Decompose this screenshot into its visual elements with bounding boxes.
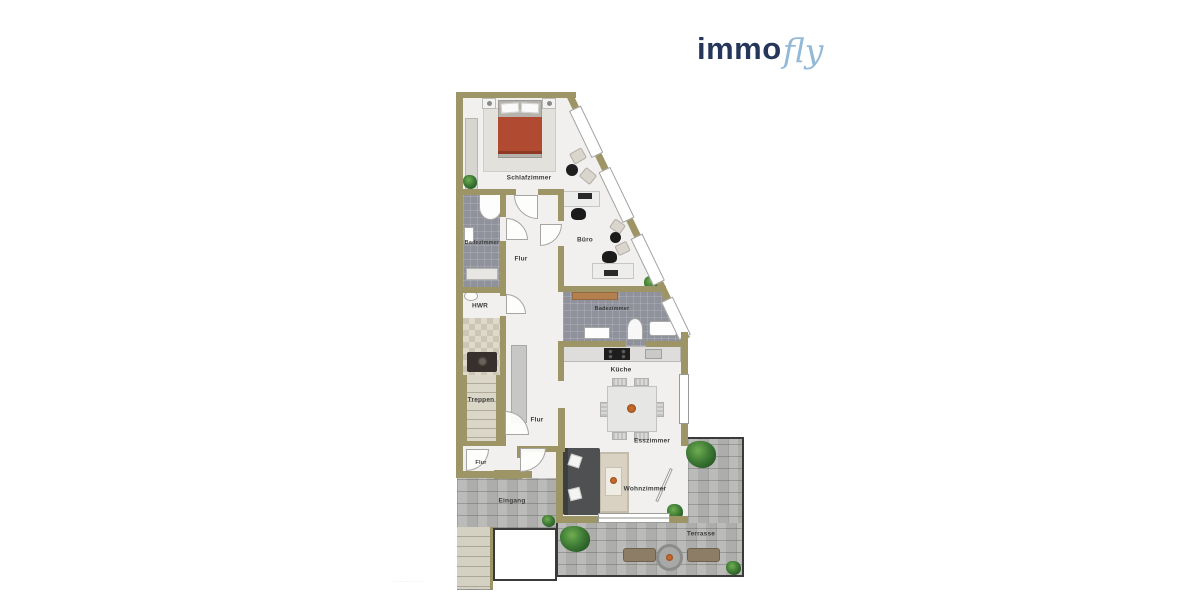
room-label-flur-1: Flur [514, 256, 527, 263]
wall-bedroom-bottom-a [456, 189, 516, 195]
dining-chair [612, 378, 627, 386]
office-monitor-2 [604, 270, 618, 276]
wall-bath2-top [558, 286, 666, 292]
cooktop [604, 348, 630, 360]
wall-outer-top [456, 92, 576, 98]
room-label-badezimmer-1: Badezimmer [465, 240, 500, 246]
wall-livingroom-left [556, 446, 563, 523]
room-label-buero: Büro [577, 237, 593, 244]
terrace-bench-right [687, 548, 720, 562]
room-label-esszimmer: Esszimmer [634, 438, 670, 445]
room-label-kueche: Küche [611, 367, 632, 374]
plant-icon [560, 526, 590, 552]
outdoor-steps [457, 527, 493, 589]
office-chair-1 [571, 208, 586, 220]
lamp-right [547, 101, 552, 106]
dining-chair [634, 378, 649, 386]
room-label-flur-3: Flur [475, 460, 486, 466]
dining-chair [656, 402, 664, 417]
candle-decor [610, 477, 617, 484]
entrance-step [494, 470, 522, 479]
wall-bath2-bottom-b [646, 341, 686, 347]
wall-bath2-bottom-a [558, 341, 626, 347]
dining-chair [612, 432, 627, 440]
office-chair-2 [602, 251, 617, 263]
fine-print: ············· [393, 579, 423, 584]
lamp-left [487, 101, 492, 106]
wall-outer-left [456, 92, 463, 478]
wall-bath1-right-b [500, 241, 506, 288]
washing-machine [467, 352, 497, 372]
room-label-wohnzimmer: Wohnzimmer [624, 486, 667, 493]
office-side-table [610, 232, 621, 243]
wall-office-left-a [558, 189, 564, 221]
window-dining-right [679, 374, 689, 424]
bath2-vanity [584, 327, 610, 339]
shower-tub [479, 194, 502, 220]
wall-hall-stub [558, 408, 565, 452]
bedroom-side-table [566, 164, 578, 176]
bed-duvet [498, 117, 542, 154]
floor-plan: Schlafzimmer Badezimmer Flur Büro HWR Ba… [0, 0, 1200, 600]
room-label-treppen: Treppen [468, 397, 495, 404]
wall-kitchen-left [558, 347, 564, 381]
plant-icon [463, 175, 477, 189]
bed-pillow-right [521, 103, 539, 114]
hall-sideboard [511, 345, 527, 423]
terrace-border-top [688, 437, 744, 439]
room-label-eingang: Eingang [498, 498, 525, 505]
sliding-door-livingroom [598, 513, 670, 523]
room-label-flur-2: Flur [530, 417, 543, 424]
terrace-bench-left [623, 548, 656, 562]
wall-bath1-right-a [500, 189, 506, 217]
room-label-schlafzimmer: Schlafzimmer [507, 175, 552, 182]
washer-drum [477, 356, 488, 367]
room-label-hwr: HWR [472, 303, 488, 310]
terrace-table-decor [666, 554, 673, 561]
office-monitor-1 [578, 193, 592, 199]
page: immofly [0, 0, 1200, 600]
door-bathroom2 [627, 318, 643, 340]
room-label-badezimmer-2: Badezimmer [595, 306, 630, 312]
terrace-border-left [556, 523, 558, 577]
room-label-terrasse: Terrasse [687, 531, 715, 538]
stairs-treppen [463, 375, 500, 443]
white-notch [493, 528, 557, 581]
wall-office-left-b [558, 246, 564, 291]
plant-icon [542, 515, 555, 527]
plant-icon [726, 561, 741, 575]
bath2-wood-counter [572, 292, 618, 300]
terrace-border-bottom [556, 575, 744, 577]
kitchen-sink [645, 349, 662, 359]
table-centerpiece [627, 404, 636, 413]
wall-stairs-vestibule [456, 441, 504, 446]
wall-bath1-bottom [456, 287, 506, 293]
bath1-vanity [466, 268, 498, 280]
bed-pillow-left [501, 102, 520, 113]
plant-icon [686, 441, 716, 468]
terrace-border-right [742, 437, 744, 577]
